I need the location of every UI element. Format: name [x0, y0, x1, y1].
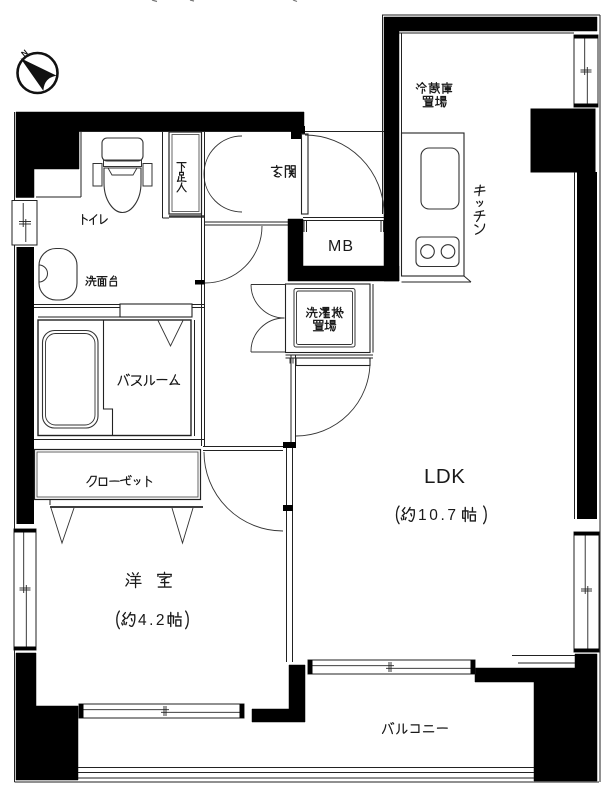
svg-text:MB: MB — [328, 238, 354, 255]
svg-text:4.2: 4.2 — [138, 612, 167, 629]
svg-text:10.7: 10.7 — [418, 507, 459, 524]
svg-text:LDK: LDK — [424, 465, 465, 488]
